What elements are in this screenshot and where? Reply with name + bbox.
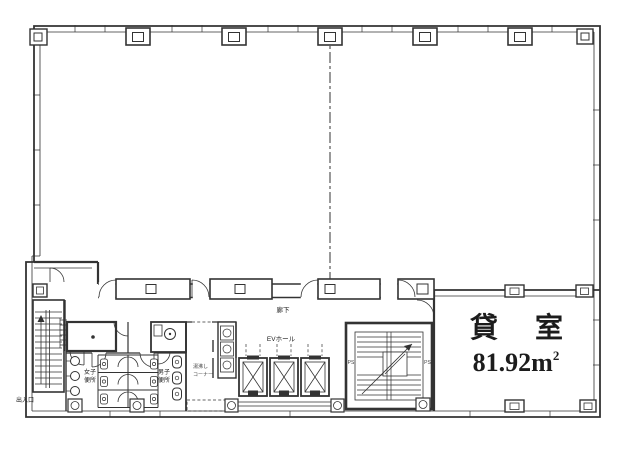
kitchen-corner-label2: コーナー [193,372,213,378]
corridor-label: 廊下 [277,305,291,314]
sink-dot [91,335,95,339]
womens-toilet-label2: 便所 [84,376,96,384]
central-staircase: PS PS [346,323,432,411]
rental-room-name: 貸 室 [470,311,578,344]
urinal-icons [173,356,182,400]
window-unit [116,279,190,299]
column [33,284,47,297]
ev-hall-label: EVホール [267,335,296,343]
column [576,285,593,297]
column [222,28,246,45]
column [505,400,524,412]
column [416,398,430,411]
floor-plan-page: 出入口 [0,0,640,454]
duct-shaft [218,322,236,378]
column [580,400,596,412]
window-unit [398,279,434,299]
column [318,28,342,45]
window-unit [318,279,380,299]
column [577,29,593,44]
column [68,399,82,412]
column [331,399,344,412]
column [30,29,47,45]
column [413,28,437,45]
column [126,28,150,45]
floor-plan: 出入口 [0,0,640,454]
pipe-space-label-right: PS [424,360,431,366]
column [225,399,238,412]
pipe-space-label-left: PS [348,360,355,366]
mens-toilet-label: 男子 [158,369,170,376]
kitchen-corner-label: 湯沸し [193,363,208,370]
rental-room-area: 81.92m2 [473,348,560,377]
womens-toilet-label: 女子 [84,368,96,376]
entrance-label: 出入口 [16,396,34,404]
mens-toilet-label2: 便所 [158,376,170,384]
column [508,28,532,45]
column [505,285,524,297]
column [130,399,144,412]
window-unit [210,279,272,299]
